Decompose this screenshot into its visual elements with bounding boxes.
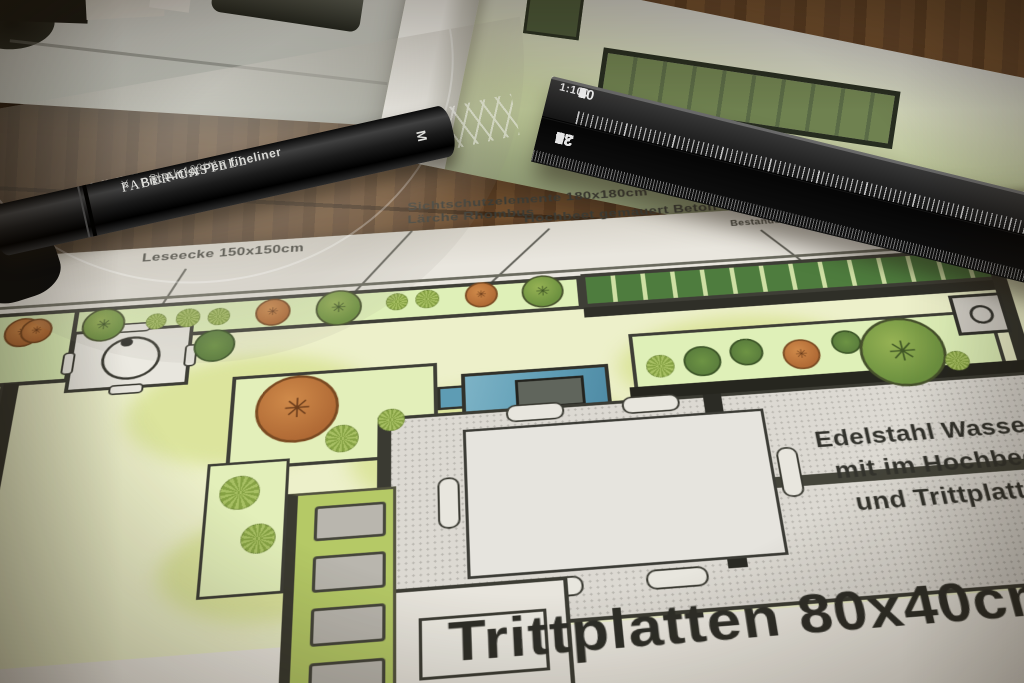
roll-plan-detail	[523, 0, 584, 40]
dark-object	[0, 0, 88, 24]
faber-castell-knights-logo: ⚔	[120, 178, 133, 191]
ruler-number: 24	[554, 127, 576, 149]
pen-tip-size: M	[413, 129, 430, 143]
ruler-number: 10	[577, 84, 596, 103]
stepping-stone	[314, 501, 386, 541]
chair	[437, 477, 461, 530]
stepping-stone	[308, 658, 386, 683]
stepping-stone	[310, 603, 386, 647]
stepping-stone-path	[275, 486, 396, 683]
stepping-stone	[312, 551, 386, 593]
tray-notch	[210, 0, 365, 33]
grill-circle	[967, 304, 996, 324]
photo-scene: Leseecke 150x150cm Sichtschutzelemente 1…	[0, 0, 1024, 683]
dining-table	[463, 408, 789, 579]
